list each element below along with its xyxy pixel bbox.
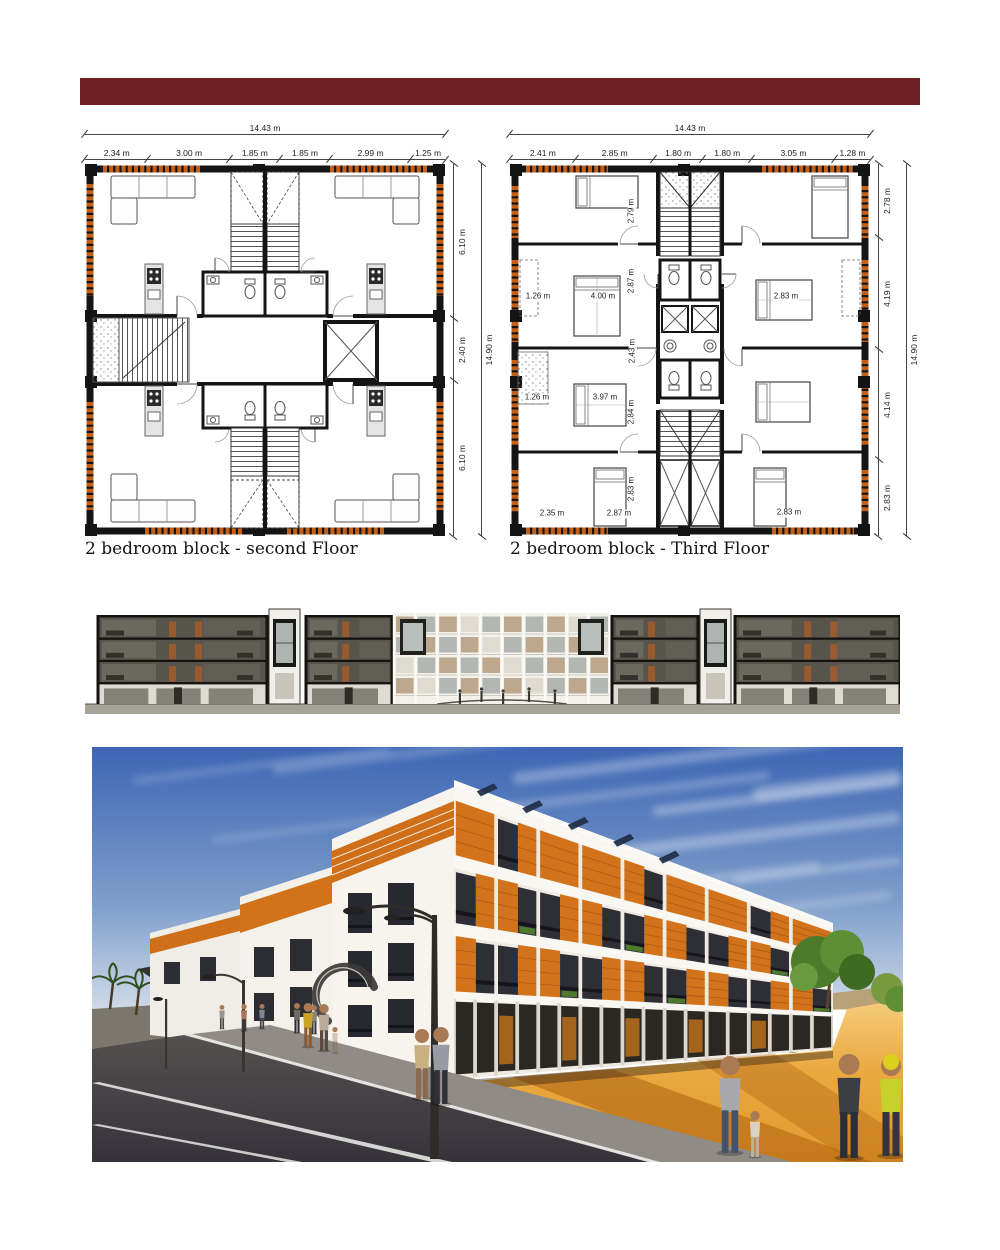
interior-dimension-label: 2.83 m xyxy=(776,509,802,518)
dimension-label: 3.05 m xyxy=(752,149,835,158)
overall-width-dimension: 14.43 m xyxy=(85,122,445,135)
dimension-segment: 1.85 m xyxy=(280,143,330,160)
dimension-label: 2.40 m xyxy=(458,337,467,363)
dimension-label: 14.43 m xyxy=(85,124,445,133)
building-section-drawing xyxy=(85,603,900,723)
interior-dimension-label: 2.84 m xyxy=(628,399,637,425)
dimension-label: 4.14 m xyxy=(883,392,892,418)
interior-dimension-label: 2.83 m xyxy=(628,476,637,502)
dimension-segment: 6.10 m xyxy=(453,381,470,536)
section-wing xyxy=(611,615,700,704)
dimension-segment: 2.78 m xyxy=(878,164,895,238)
floor-plan-drawing-third-floor xyxy=(510,164,870,536)
interior-dimension-label: 3.97 m xyxy=(592,394,618,403)
side-dimension-chain: 2.78 m4.19 m4.14 m2.83 m xyxy=(878,164,895,536)
plan-drawing-area: 2.79 m 2.87 m 1.26 m 4.00 m 2.83 m 2.43 … xyxy=(510,164,870,536)
dimension-label: 14.43 m xyxy=(510,124,870,133)
interior-dimension-label: 2.87 m xyxy=(606,510,632,519)
dimension-segment: 1.25 m xyxy=(411,143,445,160)
section-stair-tower xyxy=(269,609,300,704)
dimension-label: 3.00 m xyxy=(148,149,229,158)
dimension-segment: 4.14 m xyxy=(878,350,895,460)
dimension-segment: 2.99 m xyxy=(330,143,411,160)
dimension-segment: 4.19 m xyxy=(878,238,895,350)
floor-plan-third-floor: 14.43 m 2.41 m2.85 m1.80 m1.80 m3.05 m1.… xyxy=(510,122,922,574)
plan-drawing-area xyxy=(85,164,445,536)
dimension-segment: 2.34 m xyxy=(85,143,148,160)
dimension-label: 4.19 m xyxy=(883,281,892,307)
section-stair-tower xyxy=(700,609,731,704)
dimension-label: 6.10 m xyxy=(458,445,467,471)
dimension-label: 2.83 m xyxy=(883,485,892,511)
interior-dimension-label: 2.35 m xyxy=(539,510,565,519)
overall-height-dimension: 14.90 m xyxy=(906,164,920,536)
dimension-segment: 2.40 m xyxy=(453,319,470,380)
dimension-segment: 1.80 m xyxy=(703,143,752,160)
dimension-segment: 2.41 m xyxy=(510,143,576,160)
floor-plan-second-floor: 14.43 m 2.34 m3.00 m1.85 m1.85 m2.99 m1.… xyxy=(85,122,497,574)
dimension-label: 14.90 m xyxy=(484,335,493,366)
dimension-label: 2.78 m xyxy=(883,188,892,214)
interior-dimension-label: 1.26 m xyxy=(524,394,550,403)
dimension-label: 1.25 m xyxy=(411,149,445,158)
dimension-segment: 1.80 m xyxy=(654,143,703,160)
dimension-segment: 3.05 m xyxy=(752,143,835,160)
dimension-label: 6.10 m xyxy=(458,229,467,255)
section-center-elevation xyxy=(393,613,611,704)
floor-plan-drawing-second-floor xyxy=(85,164,445,536)
top-dimension-chain: 2.41 m2.85 m1.80 m1.80 m3.05 m1.28 m xyxy=(510,143,870,160)
plan-caption-second-floor: 2 bedroom block - second Floor xyxy=(85,539,358,559)
dimension-label: 1.85 m xyxy=(280,149,330,158)
dimension-segment: 2.83 m xyxy=(878,460,895,536)
dimension-segment: 1.85 m xyxy=(230,143,280,160)
exterior-render-image xyxy=(92,747,903,1162)
dimension-label: 1.85 m xyxy=(230,149,280,158)
interior-dimension-label: 2.83 m xyxy=(773,293,799,302)
section-wing xyxy=(305,615,394,704)
dimension-label: 1.80 m xyxy=(703,149,752,158)
section-wing xyxy=(734,615,901,704)
interior-dimension-label: 2.43 m xyxy=(629,338,638,364)
presentation-sheet: 14.43 m 2.34 m3.00 m1.85 m1.85 m2.99 m1.… xyxy=(0,0,1000,1250)
side-dimension-chain: 6.10 m2.40 m6.10 m xyxy=(453,164,470,536)
exterior-render-svg xyxy=(92,747,903,1162)
dimension-segment: 3.00 m xyxy=(148,143,229,160)
dimension-segment: 6.10 m xyxy=(453,164,470,319)
overall-height-dimension: 14.90 m xyxy=(481,164,495,536)
plan-caption-third-floor: 2 bedroom block - Third Floor xyxy=(510,539,769,559)
dimension-label: 14.90 m xyxy=(909,335,918,366)
interior-dimension-label: 2.87 m xyxy=(628,268,637,294)
dimension-label: 1.80 m xyxy=(654,149,703,158)
title-bar xyxy=(80,78,920,105)
section-wing xyxy=(97,615,269,704)
dimension-label: 2.41 m xyxy=(510,149,576,158)
overall-width-dimension: 14.43 m xyxy=(510,122,870,135)
interior-dimension-label: 2.79 m xyxy=(628,198,637,224)
dimension-label: 1.28 m xyxy=(835,149,870,158)
dimension-label: 2.34 m xyxy=(85,149,148,158)
interior-dimension-label: 1.26 m xyxy=(525,293,551,302)
building-section-svg xyxy=(85,603,900,723)
dimension-segment: 1.28 m xyxy=(835,143,870,160)
dimension-segment: 2.85 m xyxy=(576,143,654,160)
top-dimension-chain: 2.34 m3.00 m1.85 m1.85 m2.99 m1.25 m xyxy=(85,143,445,160)
dimension-label: 2.99 m xyxy=(330,149,411,158)
dimension-label: 2.85 m xyxy=(576,149,654,158)
interior-dimension-label: 4.00 m xyxy=(590,293,616,302)
